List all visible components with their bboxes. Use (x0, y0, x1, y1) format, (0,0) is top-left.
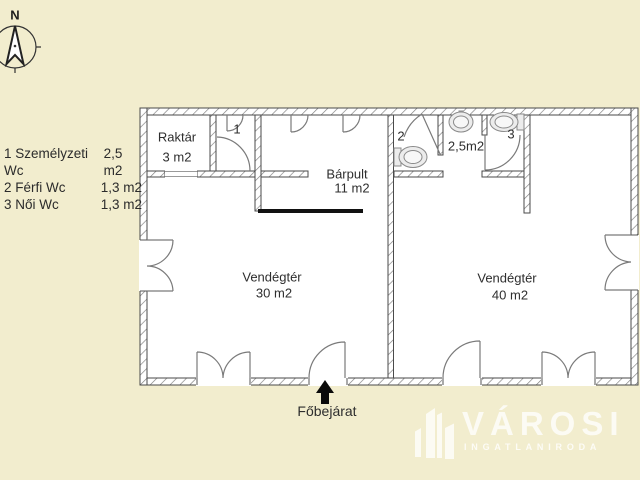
legend-area: 2,5 m2 (104, 145, 142, 179)
legend-label: 2 Férfi Wc (4, 179, 66, 196)
bar-counter (258, 209, 363, 213)
main-entrance-label: Főbejárat (297, 404, 356, 418)
compass-north-label: N (10, 8, 19, 23)
legend-label: 3 Női Wc (4, 196, 59, 213)
room-area-vendegter40: 40 m2 (492, 289, 528, 302)
room-area-raktar: 3 m2 (163, 151, 192, 164)
legend-row: 2 Férfi Wc 1,3 m2 (4, 179, 142, 196)
watermark: VÁROSI INGATLANIRODA (405, 400, 635, 465)
watermark-title: VÁROSI (462, 405, 625, 443)
legend-area: 1,3 m2 (101, 196, 142, 213)
floorplan-canvas: N 1 Személyzeti Wc 2,5 m2 2 Férfi Wc 1,3… (0, 0, 640, 480)
toilet-icon-wc2 (394, 147, 427, 168)
legend-label: 1 Személyzeti Wc (4, 145, 104, 179)
room-label-raktar: Raktár (158, 131, 196, 144)
wc-legend: 1 Személyzeti Wc 2,5 m2 2 Férfi Wc 1,3 m… (4, 145, 142, 213)
room-area-vestibule: 2,5m2 (448, 140, 484, 153)
compass-icon (0, 26, 41, 73)
room-label-barpult: Bárpult (326, 168, 367, 181)
legend-row: 3 Női Wc 1,3 m2 (4, 196, 142, 213)
legend-row: 1 Személyzeti Wc 2,5 m2 (4, 145, 142, 179)
watermark-subtitle: INGATLANIRODA (464, 442, 601, 452)
room-label-vendegter30: Vendégtér (242, 271, 301, 284)
room-area-vendegter30: 30 m2 (256, 287, 292, 300)
room-number-wc2: 2 (397, 130, 404, 143)
room-label-vendegter40: Vendégtér (477, 272, 536, 285)
room-area-barpult: 11 m2 (334, 182, 369, 195)
room-number-wc3: 3 (507, 128, 514, 141)
room-number-wc1: 1 (233, 123, 240, 136)
legend-area: 1,3 m2 (101, 179, 142, 196)
